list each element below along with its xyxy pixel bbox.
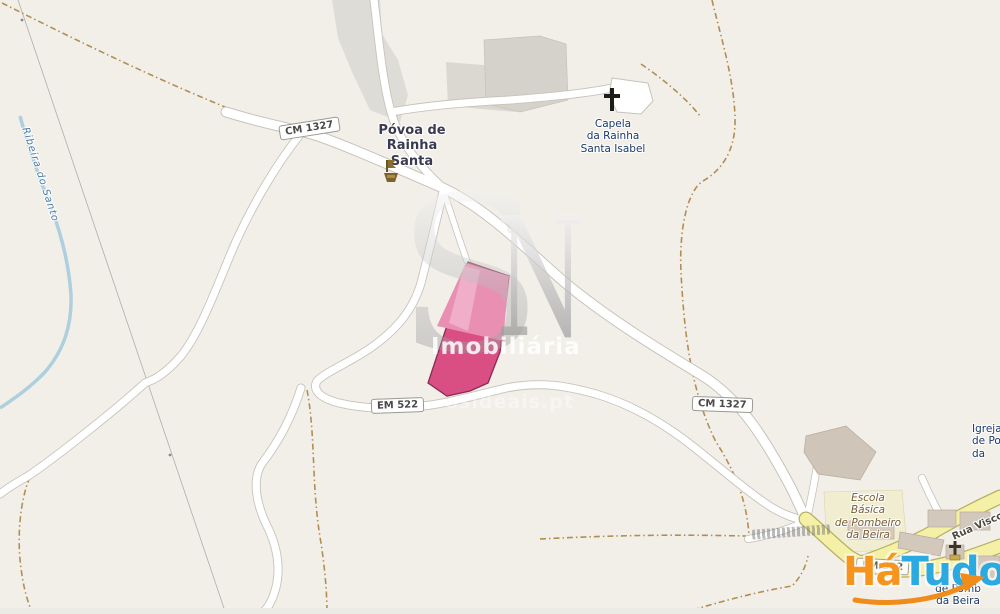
map-canvas[interactable]: Póvoa de Rainha Santa Capela da Rainha S… <box>0 0 1000 614</box>
church-label-right-edge: Igreja de Po da <box>972 423 1000 460</box>
road-badge-cm1327-east: CM 1327 <box>692 396 753 413</box>
watermark-website-text: osideais.pt <box>445 391 574 413</box>
school-label: Escola Básica de Pombeiro da Beira <box>826 492 910 542</box>
hatudo-logo-swoosh-icon <box>845 560 995 610</box>
watermark-brand-text: Imobiliária <box>431 334 581 360</box>
chapel-label: Capela da Rainha Santa Isabel <box>568 118 658 155</box>
